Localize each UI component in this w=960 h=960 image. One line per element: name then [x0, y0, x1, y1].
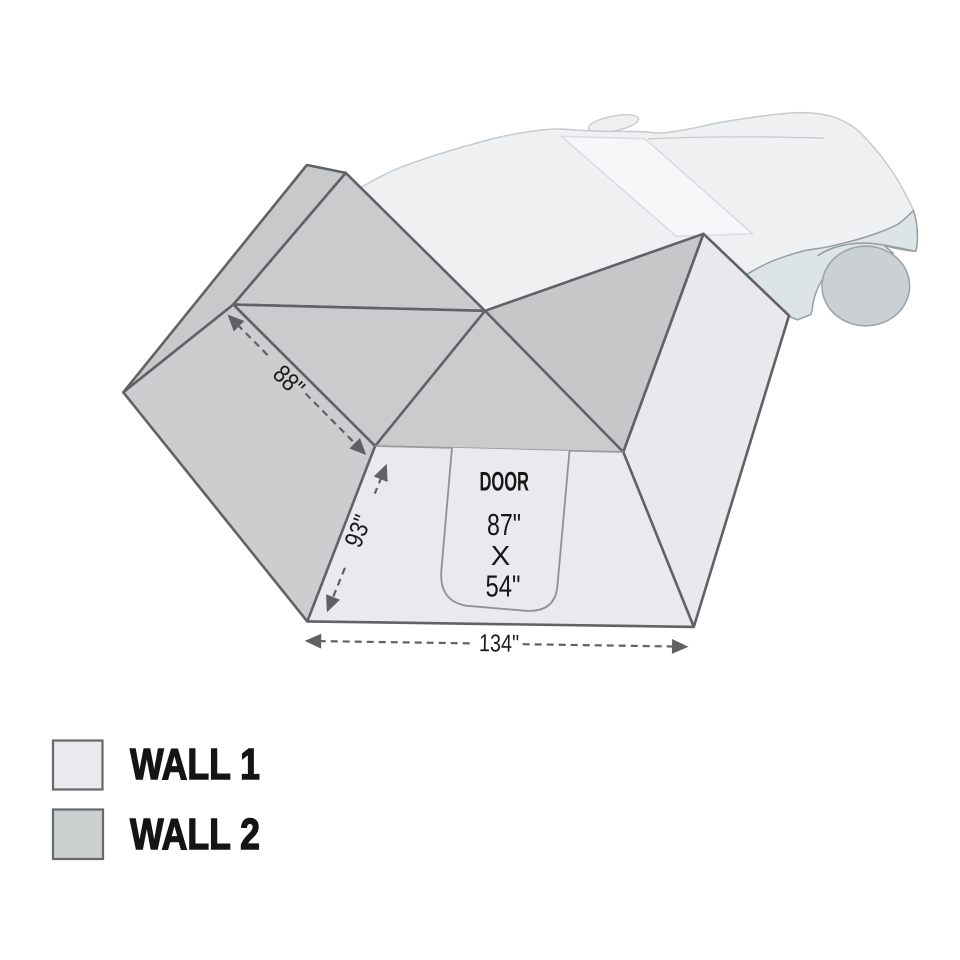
svg-text:X: X: [491, 540, 511, 571]
svg-text:WALL 1: WALL 1: [130, 741, 260, 789]
svg-text:134": 134": [479, 630, 519, 658]
svg-text:87": 87": [487, 507, 521, 542]
svg-text:DOOR: DOOR: [479, 467, 529, 497]
svg-text:54": 54": [486, 568, 521, 603]
svg-text:WALL 2: WALL 2: [130, 811, 260, 859]
